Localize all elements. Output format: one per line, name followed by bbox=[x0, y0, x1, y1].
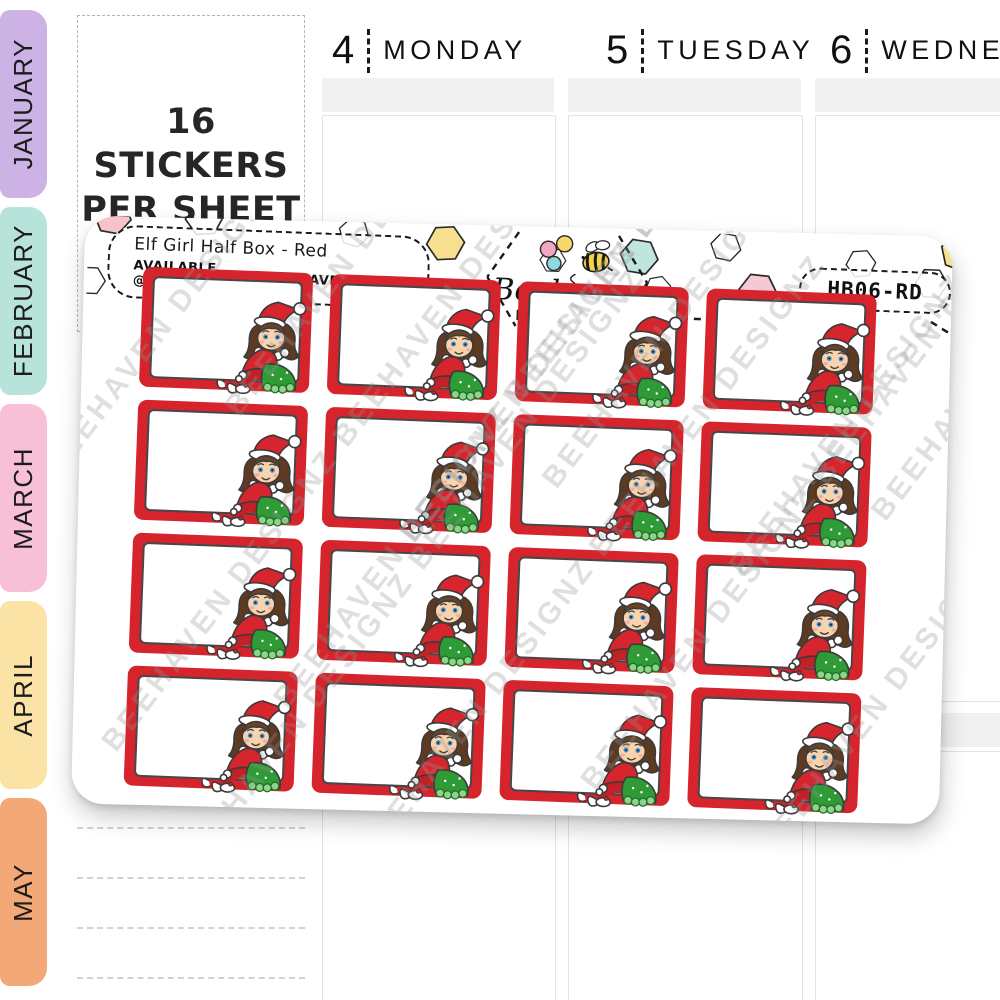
day-number: 6 bbox=[830, 28, 852, 73]
banner-line1: 16 STICKERS bbox=[78, 100, 304, 188]
column-shaded-header bbox=[568, 78, 801, 112]
elf-girl-illustration bbox=[769, 444, 871, 554]
elf-girl-illustration bbox=[393, 430, 495, 540]
elf-girl-illustration bbox=[205, 422, 307, 532]
column-shaded-header bbox=[322, 78, 554, 112]
day-name: TUESDAY bbox=[657, 35, 814, 66]
day-header-tuesday: 5TUESDAY bbox=[606, 28, 814, 73]
sticker-sheet: Elf Girl Half Box - Red AVAILABLE @ PLAN… bbox=[71, 215, 953, 824]
month-tab-label: JANUARY bbox=[8, 38, 39, 169]
elf-girl-illustration bbox=[586, 304, 688, 414]
half-box-sticker bbox=[499, 680, 673, 806]
elf-girl-illustration bbox=[576, 570, 678, 680]
day-header-wednesday: 6WEDNESDAY bbox=[830, 28, 1000, 73]
sticker-grid bbox=[71, 215, 953, 824]
dashed-writing-line bbox=[77, 977, 305, 979]
elf-girl-illustration bbox=[398, 297, 500, 407]
day-name: MONDAY bbox=[383, 35, 527, 66]
elf-girl-illustration bbox=[200, 555, 302, 665]
elf-girl-illustration bbox=[581, 437, 683, 547]
day-name: WEDNESDAY bbox=[881, 35, 1000, 66]
dashed-writing-line bbox=[77, 827, 305, 829]
elf-girl-illustration bbox=[764, 577, 866, 687]
dashed-writing-line bbox=[77, 927, 305, 929]
half-box-sticker bbox=[316, 540, 490, 666]
half-box-sticker bbox=[687, 687, 861, 813]
day-number: 4 bbox=[332, 28, 354, 73]
day-divider bbox=[865, 29, 868, 73]
dashed-writing-line bbox=[77, 877, 305, 879]
half-box-sticker bbox=[504, 547, 678, 673]
elf-girl-illustration bbox=[388, 562, 490, 672]
half-box-sticker bbox=[134, 400, 308, 526]
elf-girl-illustration bbox=[571, 703, 673, 813]
elf-girl-illustration bbox=[774, 311, 876, 421]
half-box-sticker bbox=[515, 281, 689, 407]
product-image: JANUARYFEBRUARYMARCHAPRILMAY 4MONDAY5TUE… bbox=[0, 0, 1000, 1000]
month-tab-march: MARCH bbox=[0, 404, 47, 592]
half-box-sticker bbox=[327, 274, 501, 400]
elf-girl-illustration bbox=[211, 289, 313, 399]
day-divider bbox=[641, 29, 644, 73]
half-box-sticker bbox=[509, 414, 683, 540]
half-box-sticker bbox=[702, 288, 876, 414]
month-tab-may: MAY bbox=[0, 798, 47, 986]
month-tab-february: FEBRUARY bbox=[0, 207, 47, 395]
half-box-sticker bbox=[692, 554, 866, 680]
elf-girl-illustration bbox=[759, 710, 861, 820]
half-box-sticker bbox=[129, 532, 303, 658]
month-tab-label: MAY bbox=[8, 863, 39, 922]
elf-girl-illustration bbox=[195, 688, 297, 798]
month-tab-april: APRIL bbox=[0, 601, 47, 789]
column-shaded-header bbox=[815, 78, 1000, 112]
half-box-sticker bbox=[322, 407, 496, 533]
month-tab-label: FEBRUARY bbox=[8, 224, 39, 377]
day-number: 5 bbox=[606, 28, 628, 73]
half-box-sticker bbox=[124, 665, 298, 791]
half-box-sticker bbox=[311, 673, 485, 799]
elf-girl-illustration bbox=[383, 695, 485, 805]
month-tab-label: APRIL bbox=[8, 654, 39, 737]
half-box-sticker bbox=[139, 267, 313, 393]
half-box-sticker bbox=[697, 421, 871, 547]
month-tab-label: MARCH bbox=[8, 447, 39, 550]
month-tab-january: JANUARY bbox=[0, 10, 47, 198]
day-divider bbox=[367, 29, 370, 73]
day-header-monday: 4MONDAY bbox=[332, 28, 527, 73]
